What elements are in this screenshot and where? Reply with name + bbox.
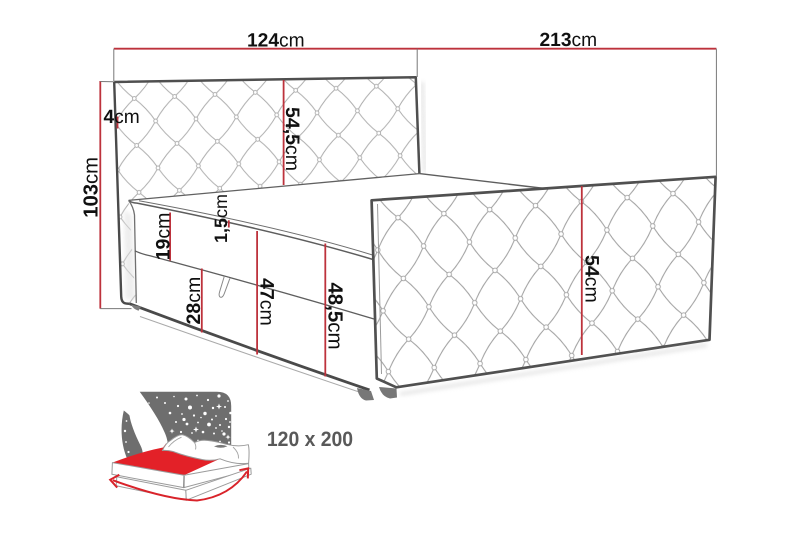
svg-text:4cm: 4cm [104, 107, 140, 128]
svg-text:19cm: 19cm [152, 213, 174, 261]
svg-text:103cm: 103cm [81, 157, 103, 218]
svg-text:120 x 200: 120 x 200 [267, 428, 353, 451]
svg-text:54,5cm: 54,5cm [281, 107, 303, 171]
svg-text:213cm: 213cm [540, 30, 598, 51]
svg-text:28cm: 28cm [183, 277, 205, 325]
svg-text:54cm: 54cm [581, 255, 603, 303]
svg-text:47cm: 47cm [256, 278, 278, 326]
svg-text:1,5cm: 1,5cm [211, 194, 231, 243]
svg-text:124cm: 124cm [247, 31, 305, 52]
svg-text:48,5cm: 48,5cm [324, 282, 347, 349]
